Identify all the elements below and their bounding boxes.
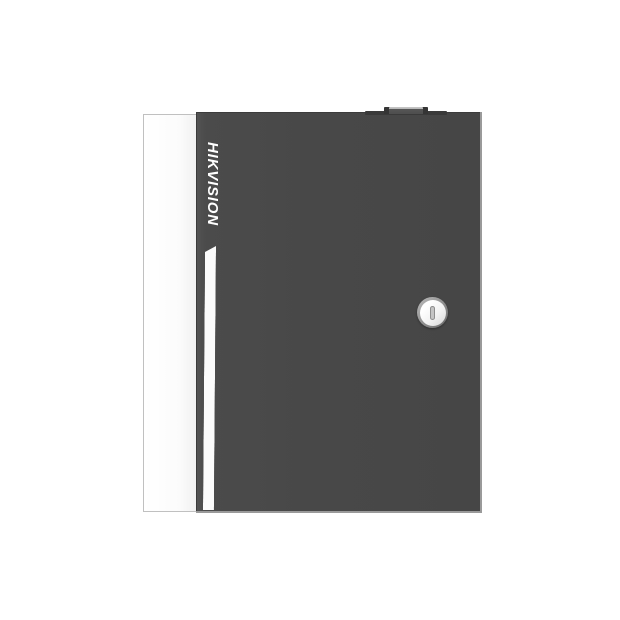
product-photo: HIKVISION — [0, 0, 620, 620]
cam-lock-face — [420, 300, 446, 326]
keyhole-icon — [430, 306, 435, 320]
access-controller-cabinet: HIKVISION — [0, 0, 620, 620]
accent-stripe — [203, 246, 216, 510]
top-latch-block — [384, 107, 428, 114]
brand-logo: HIKVISION — [196, 142, 224, 234]
cabinet-side-panel — [143, 114, 196, 512]
cam-lock — [417, 297, 448, 328]
brand-logo-text: HIKVISION — [204, 142, 221, 226]
